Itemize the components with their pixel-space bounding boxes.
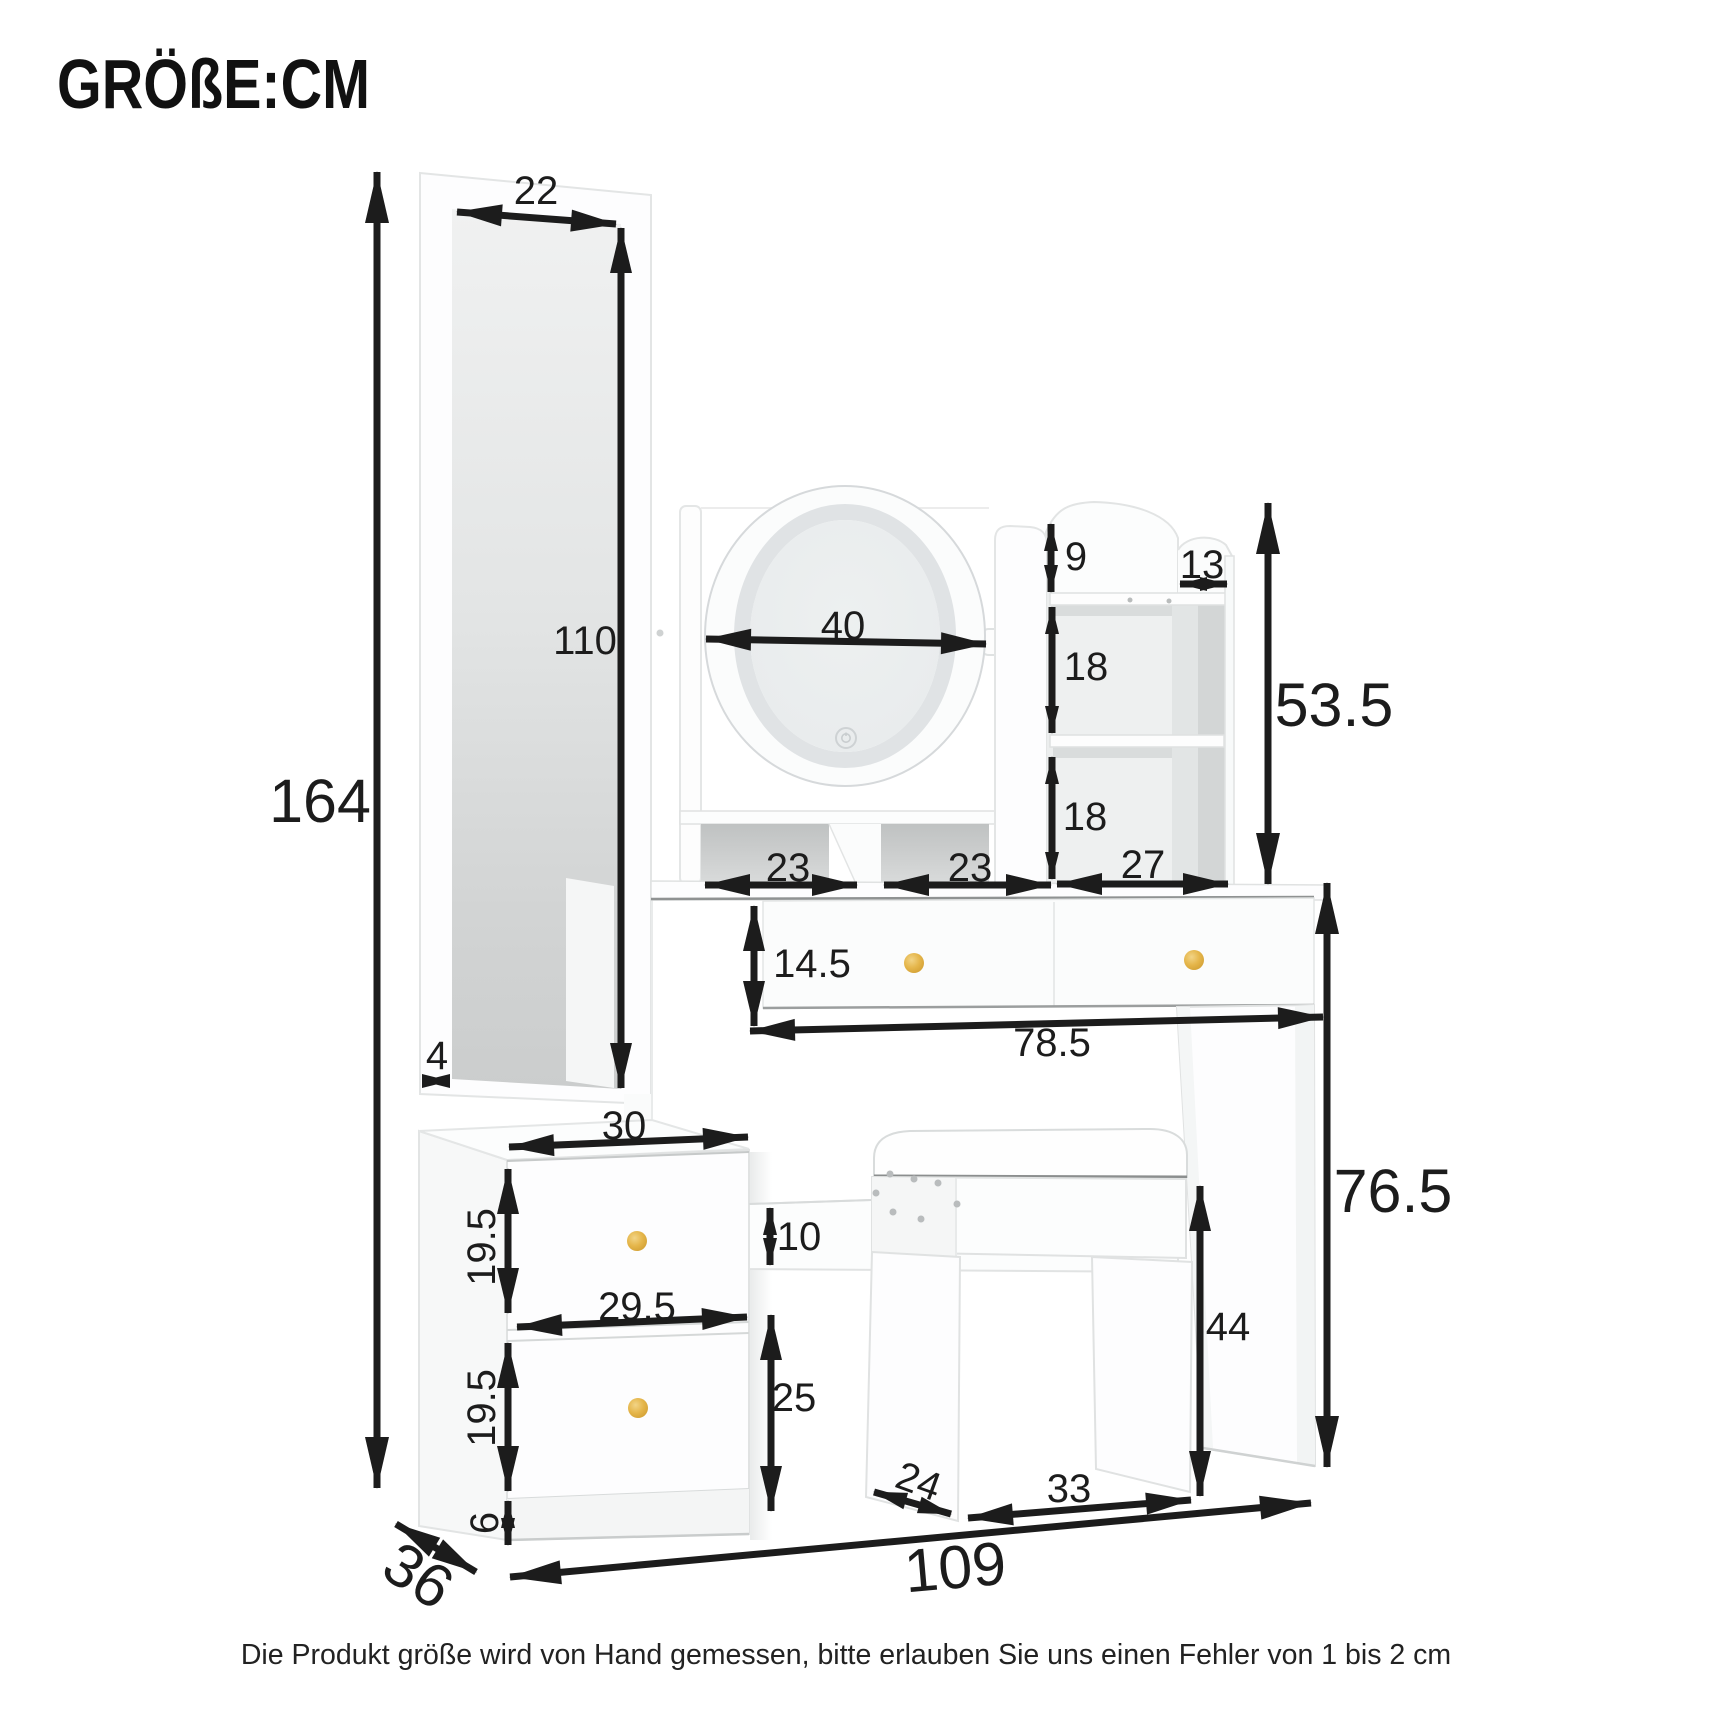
svg-text:13: 13 [1180,543,1225,587]
svg-text:23: 23 [948,846,993,890]
svg-text:25: 25 [772,1376,817,1420]
svg-text:18: 18 [1064,645,1109,689]
svg-text:9: 9 [1065,535,1087,579]
svg-text:18: 18 [1063,795,1108,839]
svg-text:10: 10 [777,1215,822,1259]
svg-text:78.5: 78.5 [1013,1021,1091,1065]
svg-text:6: 6 [463,1512,507,1534]
svg-text:14.5: 14.5 [773,942,851,986]
svg-text:36: 36 [371,1528,465,1622]
svg-text:33: 33 [1047,1467,1092,1511]
svg-text:44: 44 [1206,1305,1251,1349]
svg-text:76.5: 76.5 [1334,1157,1453,1225]
svg-text:Die Produkt größe wird von Han: Die Produkt größe wird von Hand gemessen… [241,1639,1451,1671]
svg-text:30: 30 [602,1104,647,1148]
svg-text:40: 40 [821,604,866,648]
svg-text:23: 23 [766,846,811,890]
svg-text:164: 164 [269,767,371,835]
svg-text:4: 4 [426,1034,448,1078]
svg-text:19.5: 19.5 [460,1369,504,1447]
svg-text:110: 110 [553,619,617,663]
svg-text:53.5: 53.5 [1275,671,1394,739]
svg-text:19.5: 19.5 [460,1208,504,1286]
svg-text:27: 27 [1121,843,1166,887]
svg-text:22: 22 [514,169,559,213]
svg-text:109: 109 [902,1529,1009,1606]
svg-text:29.5: 29.5 [598,1285,676,1329]
svg-text:GRÖßE:CM: GRÖßE:CM [57,45,370,123]
